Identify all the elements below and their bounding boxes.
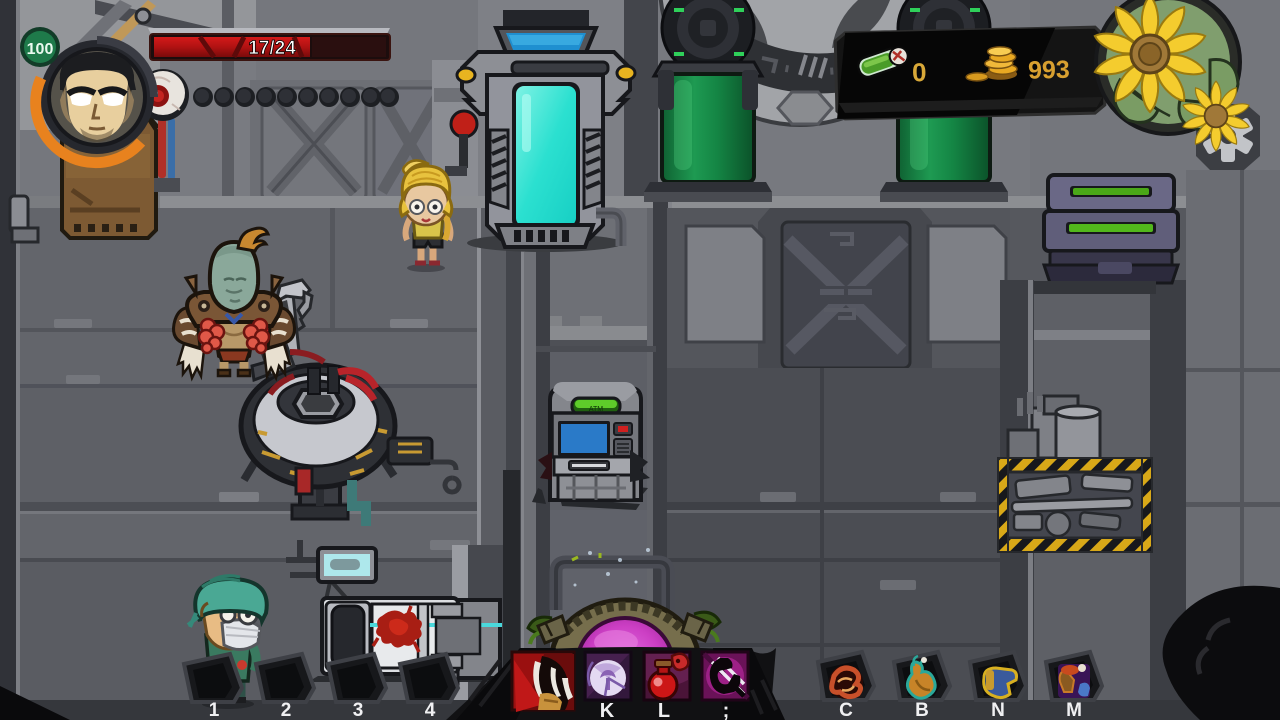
svg-text:100: 100 <box>27 41 54 58</box>
svg-text:M: M <box>1066 700 1082 720</box>
svg-text:1: 1 <box>209 700 220 720</box>
svg-text:993: 993 <box>1028 56 1070 85</box>
svg-text:2: 2 <box>281 700 292 720</box>
svg-text:4: 4 <box>425 700 436 720</box>
svg-text:;: ; <box>723 700 730 720</box>
svg-text:C: C <box>839 700 853 720</box>
svg-text:B: B <box>915 700 929 720</box>
svg-text:K: K <box>600 700 615 720</box>
svg-text:0: 0 <box>912 57 927 87</box>
svg-text:3: 3 <box>353 700 364 720</box>
svg-text:L: L <box>658 700 670 720</box>
svg-text:17/24: 17/24 <box>248 38 296 59</box>
svg-text:N: N <box>991 700 1005 720</box>
